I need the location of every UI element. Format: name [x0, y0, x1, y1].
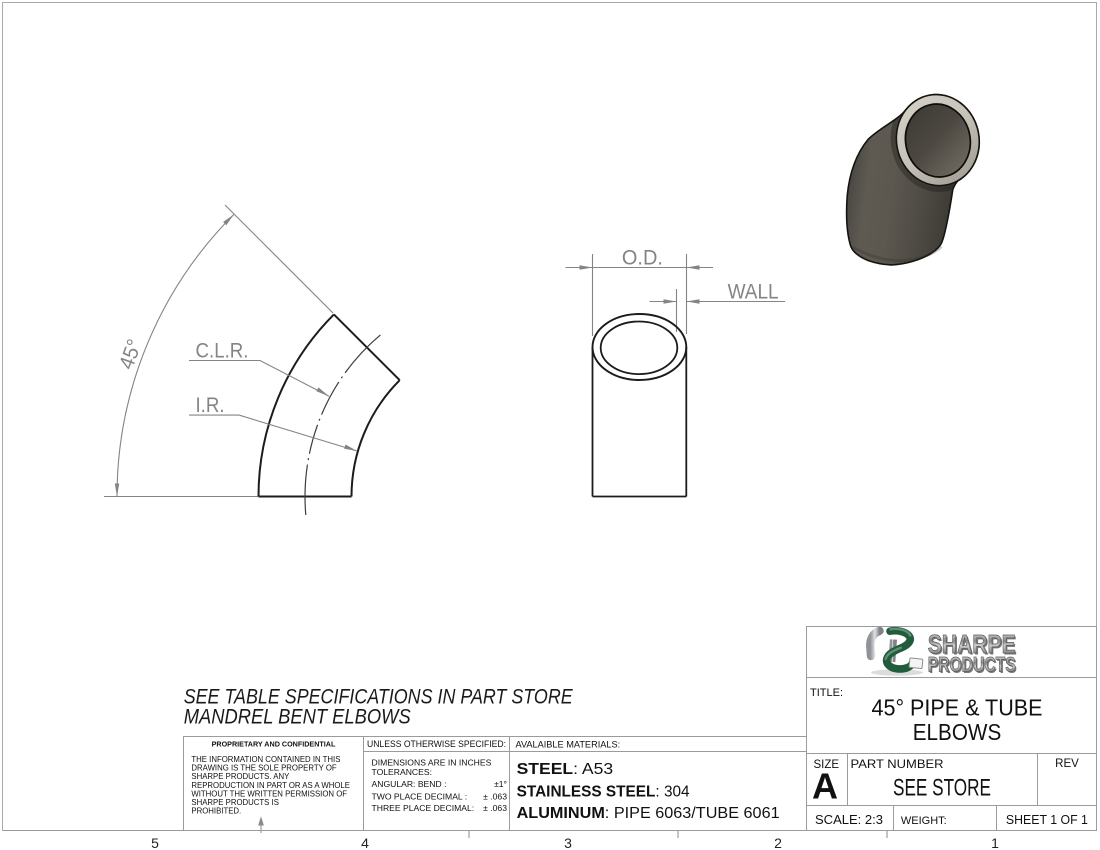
svg-text:45° PIPE & TUBE: 45° PIPE & TUBE — [872, 695, 1043, 721]
svg-text:A: A — [812, 766, 838, 807]
svg-text:SHEET 1 OF 1: SHEET 1 OF 1 — [1006, 813, 1088, 827]
svg-text:4: 4 — [361, 835, 369, 850]
svg-text:ANGULAR: BEND :: ANGULAR: BEND : — [372, 779, 447, 789]
svg-text:O.D.: O.D. — [622, 247, 663, 270]
svg-text:2: 2 — [774, 835, 782, 850]
svg-text:C.L.R.: C.L.R. — [196, 340, 249, 363]
svg-text:WALL: WALL — [728, 281, 779, 304]
svg-text:ELBOWS: ELBOWS — [913, 719, 1002, 745]
svg-text:TITLE:: TITLE: — [810, 687, 843, 699]
svg-text:± .063: ± .063 — [483, 792, 507, 802]
svg-text:DIMENSIONS ARE IN INCHES: DIMENSIONS ARE IN INCHES — [372, 758, 492, 768]
svg-text:REV: REV — [1055, 758, 1079, 770]
svg-text:PART NUMBER: PART NUMBER — [851, 759, 944, 771]
svg-text:WEIGHT:: WEIGHT: — [901, 815, 947, 827]
svg-text:TWO PLACE DECIMAL :: TWO PLACE DECIMAL : — [372, 792, 468, 802]
svg-text:5: 5 — [151, 835, 159, 850]
svg-text:THREE PLACE DECIMAL:: THREE PLACE DECIMAL: — [372, 803, 475, 813]
svg-text:SCALE: 2:3: SCALE: 2:3 — [815, 813, 883, 827]
svg-text:PROHIBITED.: PROHIBITED. — [191, 807, 241, 816]
svg-text:UNLESS OTHERWISE SPECIFIED:: UNLESS OTHERWISE SPECIFIED: — [367, 739, 506, 749]
svg-text:I.R.: I.R. — [196, 394, 225, 417]
svg-text:3: 3 — [564, 835, 572, 850]
svg-text:±1°: ±1° — [494, 779, 507, 789]
svg-text:1: 1 — [991, 835, 999, 850]
svg-text:AVALAIBLE MATERIALS:: AVALAIBLE MATERIALS: — [516, 739, 621, 749]
svg-text:PRODUCTS: PRODUCTS — [928, 654, 1016, 677]
svg-text:STAINLESS STEEL: 304: STAINLESS STEEL: 304 — [517, 784, 690, 801]
svg-text:± .063: ± .063 — [483, 803, 507, 813]
svg-text:MANDREL BENT ELBOWS: MANDREL BENT ELBOWS — [184, 706, 411, 729]
svg-text:SEE STORE: SEE STORE — [893, 775, 991, 802]
svg-text:ALUMINUM: PIPE 6063/TUBE 6061: ALUMINUM: PIPE 6063/TUBE 6061 — [517, 805, 780, 822]
svg-text:PROPRIETARY AND CONFIDENTIAL: PROPRIETARY AND CONFIDENTIAL — [212, 740, 336, 749]
svg-text:STEEL: A53: STEEL: A53 — [517, 761, 614, 778]
svg-text:TOLERANCES:: TOLERANCES: — [372, 767, 433, 777]
